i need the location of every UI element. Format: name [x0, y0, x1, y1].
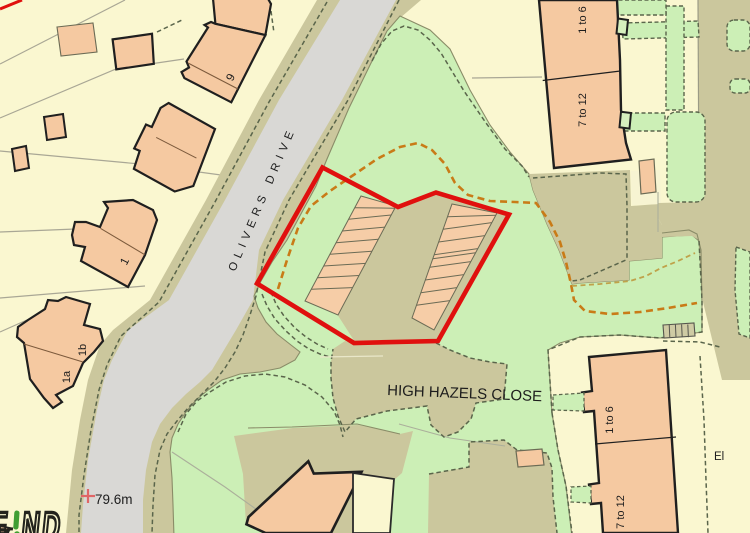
svg-text:1a: 1a: [61, 370, 73, 383]
svg-text:1b: 1b: [77, 344, 89, 356]
svg-text:El: El: [714, 451, 724, 463]
svg-text:79.6m: 79.6m: [95, 492, 133, 507]
svg-text:ND: ND: [19, 505, 64, 533]
svg-text:7 to 12: 7 to 12: [615, 495, 627, 529]
svg-text:1 to 6: 1 to 6: [577, 6, 589, 34]
svg-text:7 to 12: 7 to 12: [577, 93, 589, 127]
svg-text:1 to 6: 1 to 6: [604, 406, 616, 434]
